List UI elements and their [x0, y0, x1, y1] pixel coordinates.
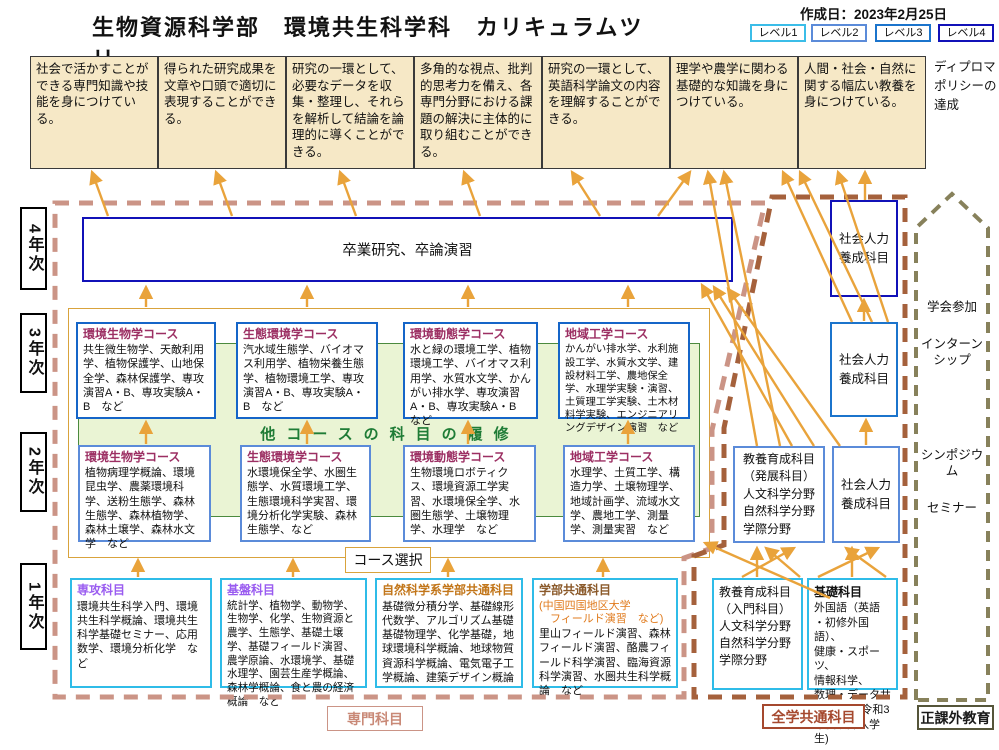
y3-course-kankyoseibutsu: 環境生物学コース 共生微生物学、天敵利用学、植物保護学、山地保全学、森林保護学、… [76, 322, 216, 419]
course-name: 環境生物学コース [83, 327, 209, 342]
extracurricular-internship: インターン シップ [916, 337, 988, 368]
dp-outcome-2: 得られた研究成果を文章や口頭で適切に表現することができる。 [158, 56, 286, 169]
y1-shizenkagaku-kyotsu: 自然科学系学部共通科目 基礎微分積分学、基礎線形代数学、アルゴリズム基礎 基礎物… [375, 578, 523, 688]
shakaijinryoku-l3-box: 社会人力 養成科目 [830, 322, 898, 417]
course-subjects: 水理学、土質工学、構造力学、土壌物理学、地域計画学、流域水文学、農地工学、測量学… [570, 466, 688, 536]
y1-senko-kamoku: 専攻科目 環境共生科学入門、環境共生科学概論、環境共生科学基礎セミナー、応用数学… [70, 578, 212, 688]
y3-course-kankyodotai: 環境動態学コース 水と緑の環境工学、植物環境工学、バイオマス利用学、水質水文学、… [403, 322, 538, 419]
course-name: 地域工学コース [565, 327, 683, 342]
legend-level3: レベル3 [875, 24, 931, 42]
dp-outcome-1: 社会で活かすことができる専門知識や技能を身につけている。 [30, 56, 158, 169]
course-name: 環境動態学コース [410, 450, 529, 465]
dp-outcome-6: 理学や農学に関わる基礎的な知識を身につけている。 [670, 56, 798, 169]
extracurricular-gakkai: 学会参加 [916, 300, 988, 316]
extracurricular-seminar: セミナー [916, 501, 988, 517]
zengaku-kyotsu-label: 全学共通科目 [762, 704, 865, 729]
other-course-band-label: 他コースの科目の履修 [150, 423, 630, 444]
legend-level4: レベル4 [938, 24, 994, 42]
diploma-policy-note: ディプロマ ポリシーの 達成 [934, 58, 998, 114]
y2-course-seitaikankyo: 生態環境学コース 水環境保全学、水圏生態学、水質環境工学、生態環境科学実習、環境… [240, 445, 371, 542]
course-subjects: 共生微生物学、天敵利用学、植物保護学、山地保全学、森林保護学、専攻演習A・B、専… [83, 343, 209, 413]
created-date: 作成日：2023年2月25日 [800, 3, 990, 23]
box-body: 統計学、植物学、動物学、生物学、化学、生物資源と農学、生態学、基礎土壌学、基礎フ… [227, 600, 360, 710]
box-title: 基盤科目 [227, 583, 360, 599]
course-name: 環境生物学コース [85, 450, 204, 465]
kiso-kamoku-box: 基礎科目 外国語（英語 ・初修外国語）、 健康・スポーツ、 情報科学、 数理・デ… [807, 578, 898, 690]
shakaijinryoku-l2-box: 社会人力 養成科目 [832, 446, 900, 543]
box-body: 里山フィールド演習、森林フィールド演習、酪農フィールド科学演習、臨海資源科学演習… [539, 627, 671, 698]
box-body: 基礎微分積分学、基礎線形代数学、アルゴリズム基礎 基礎物理学、化学基礎，地球環境… [382, 600, 516, 686]
y2-course-kankyodotai: 環境動態学コース 生物環境ロボティクス、環境資源工学実習、水環境保全学、水圏生態… [403, 445, 536, 542]
dp-outcome-7: 人間・社会・自然に関する幅広い教養を身につけている。 [798, 56, 926, 169]
seikagai-kyoiku-label: 正課外教育 [917, 705, 994, 730]
extracurricular-symposium: シンポジウム [916, 448, 988, 479]
box-note: (中国四国地区大学 フィールド演習 など) [539, 600, 671, 628]
box-title: 自然科学系学部共通科目 [382, 583, 516, 599]
box-title: 学部共通科目 [539, 583, 671, 599]
kyoyo-hatten-box: 教養育成科目 （発展科目） 人文科学分野 自然科学分野 学際分野 [733, 446, 825, 543]
course-select-label: コース選択 [345, 547, 431, 573]
year-label-2: 2年次 [20, 432, 47, 512]
dp-outcome-3: 研究の一環として、必要なデータを収集・整理し、それらを解析して結論を論理的に導く… [286, 56, 414, 169]
seikagai-region-outline [916, 194, 988, 700]
box-title: 基礎科目 [814, 584, 891, 601]
course-subjects: 植物病理学概論、環境昆虫学、農薬環境科学、送粉生態学、森林生態学、森林植物学、森… [85, 466, 204, 550]
graduation-research-box: 卒業研究、卒論演習 [82, 217, 733, 282]
shakaijinryoku-l4-box: 社会人力 養成科目 [830, 200, 898, 297]
y1-gakubu-kyotsu: 学部共通科目 (中国四国地区大学 フィールド演習 など) 里山フィールド演習、森… [532, 578, 678, 688]
year-label-4: 4年次 [20, 207, 47, 290]
course-subjects: かんがい排水学、水利施設工学、水質水文学、建設材料工学、農地保全学、水理学実験・… [565, 343, 683, 435]
y3-course-chiikikogaku: 地域工学コース かんがい排水学、水利施設工学、水質水文学、建設材料工学、農地保全… [558, 322, 690, 419]
course-name: 生態環境学コース [247, 450, 364, 465]
box-title: 専攻科目 [77, 583, 205, 599]
dp-outcome-4: 多角的な視点、批判的思考力を備え、各専門分野における課題の解決に主体的に取り組む… [414, 56, 542, 169]
course-name: 地域工学コース [570, 450, 688, 465]
senmon-kamoku-label: 専門科目 [327, 706, 423, 731]
course-name: 生態環境学コース [243, 327, 371, 342]
legend-level2: レベル2 [811, 24, 867, 42]
y2-course-chiikikogaku: 地域工学コース 水理学、土質工学、構造力学、土壌物理学、地域計画学、流域水文学、… [563, 445, 695, 542]
course-subjects: 水環境保全学、水圏生態学、水質環境工学、生態環境科学実習、環境分析化学実験、森林… [247, 466, 364, 536]
y2-course-kankyoseibutsu: 環境生物学コース 植物病理学概論、環境昆虫学、農薬環境科学、送粉生態学、森林生態… [78, 445, 211, 542]
year-label-1: 1年次 [20, 563, 47, 650]
curriculum-tree-page: 生物資源科学部 環境共生科学科 カリキュラムツリー 作成日：2023年2月25日… [0, 0, 999, 750]
kyoyo-nyumon-box: 教養育成科目 （入門科目） 人文科学分野 自然科学分野 学際分野 [712, 578, 803, 690]
course-name: 環境動態学コース [410, 327, 531, 342]
y1-kiban-kamoku: 基盤科目 統計学、植物学、動物学、生物学、化学、生物資源と農学、生態学、基礎土壌… [220, 578, 367, 688]
course-subjects: 汽水域生態学、バイオマス利用学、植物栄養生態学、植物環境工学、専攻演習A・B、専… [243, 343, 371, 413]
course-subjects: 生物環境ロボティクス、環境資源工学実習、水環境保全学、水圏生態学、土壌物理学、水… [410, 466, 529, 536]
box-body: 環境共生科学入門、環境共生科学概論、環境共生科学基礎セミナー、応用数学、環境分析… [77, 600, 205, 671]
year-label-3: 3年次 [20, 313, 47, 393]
legend-level1: レベル1 [750, 24, 806, 42]
y3-course-seitaikankyo: 生態環境学コース 汽水域生態学、バイオマス利用学、植物栄養生態学、植物環境工学、… [236, 322, 378, 419]
course-subjects: 水と緑の環境工学、植物環境工学、バイオマス利用学、水質水文学、かんがい排水学、専… [410, 343, 531, 427]
dp-outcome-5: 研究の一環として、英語科学論文の内容を理解することができる。 [542, 56, 670, 169]
